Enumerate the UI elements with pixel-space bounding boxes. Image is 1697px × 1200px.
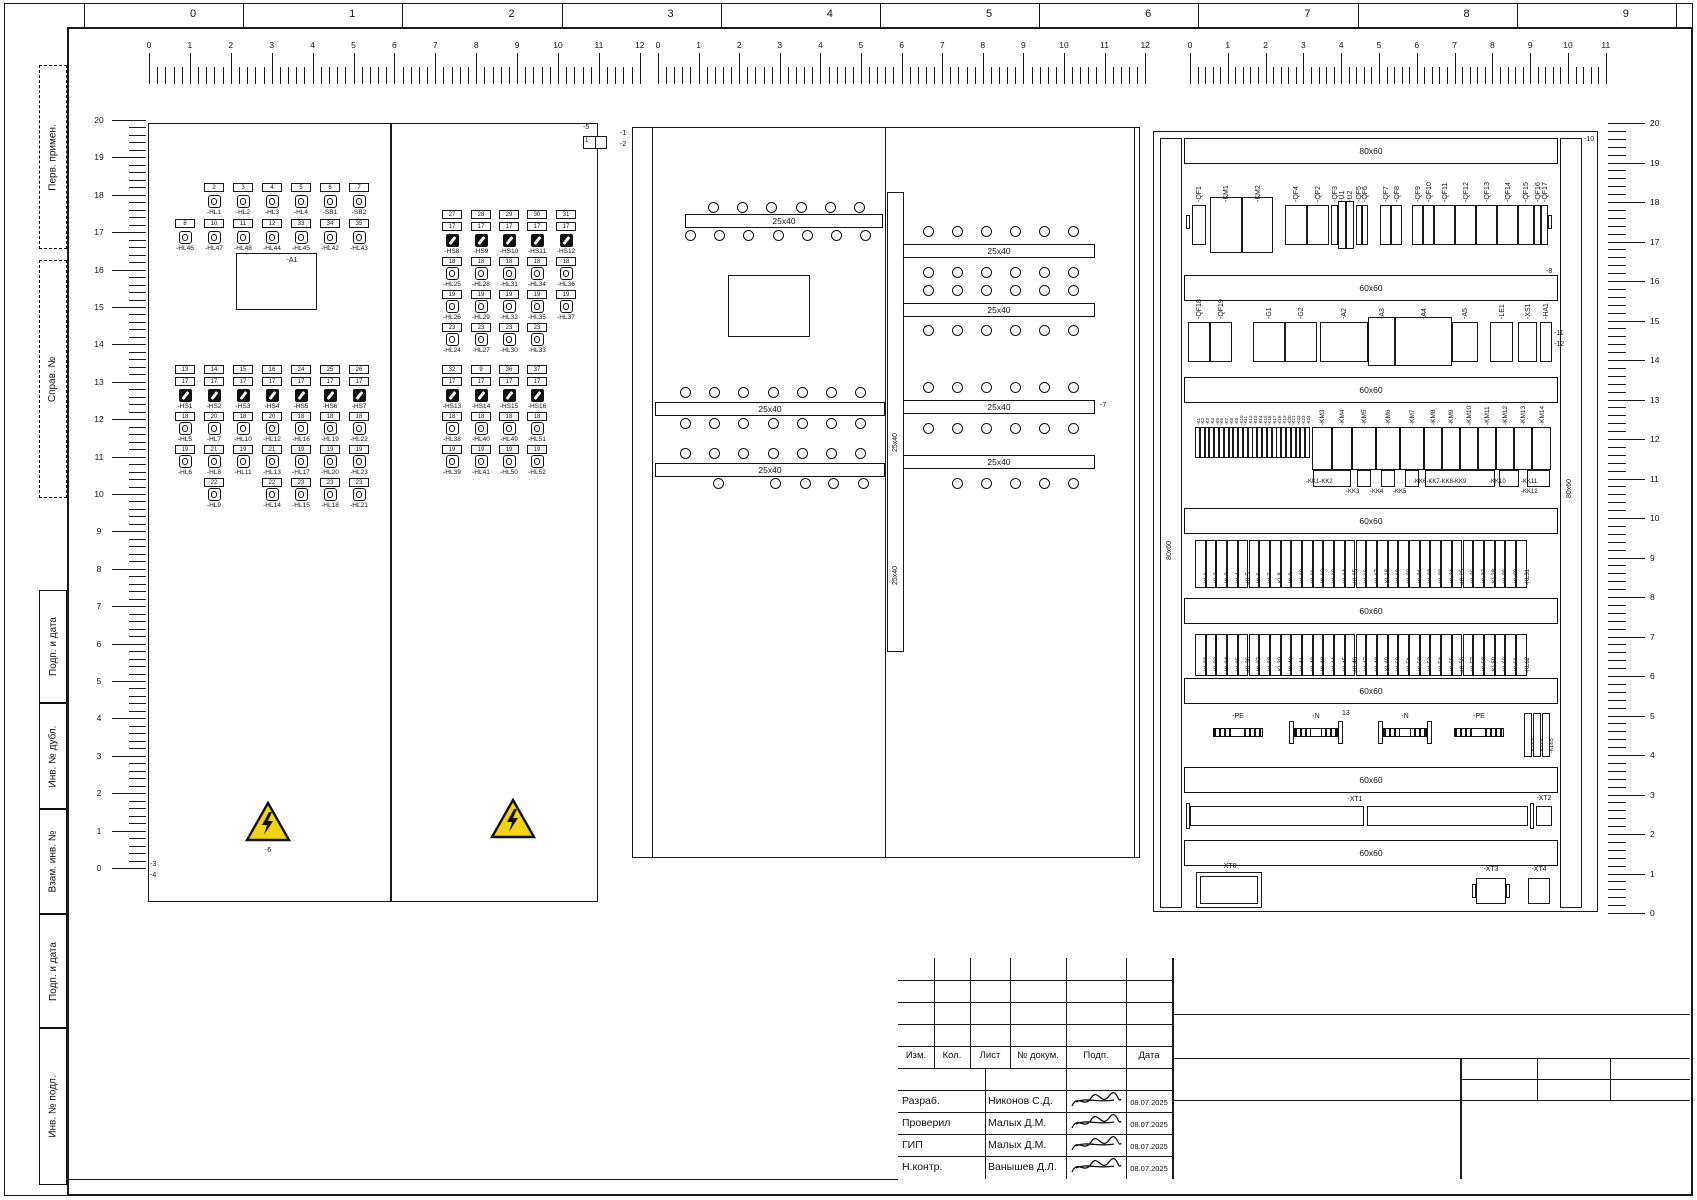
mounting-hole — [709, 448, 720, 459]
mounting-hole — [855, 448, 866, 459]
margin-label: Подп. и дата — [48, 942, 59, 1001]
ruler-tick — [296, 67, 297, 84]
ruler-number: 1 — [689, 40, 709, 50]
ruler-tick — [1213, 67, 1214, 84]
ruler-tick — [1608, 455, 1626, 456]
indicator-lamp — [237, 231, 250, 244]
top-scale-label: 4 — [780, 8, 880, 20]
ruler-tick — [1591, 67, 1592, 84]
ruler-tick — [378, 67, 379, 84]
component-ref: -QF10 — [1426, 182, 1433, 202]
tb-line — [898, 1156, 1172, 1157]
ruler-tick — [112, 120, 146, 121]
margin-label-box: Перв. примен. — [39, 65, 67, 249]
tag-label-box: 6 — [320, 183, 340, 192]
ruler-tick — [640, 53, 641, 84]
ruler-number: 10 — [548, 40, 568, 50]
ruler-tick — [214, 67, 215, 84]
ruler-tick — [991, 67, 992, 84]
cable-ref: -4 — [150, 872, 156, 879]
ruler-tick — [983, 53, 984, 84]
ruler-tick — [853, 67, 854, 84]
ruler-tick — [674, 67, 675, 84]
bus-bar-gap — [1474, 729, 1484, 736]
ruler-tick — [542, 67, 543, 84]
mounting-hole — [981, 285, 992, 296]
ruler-tick — [112, 868, 146, 869]
tag-label-box: 11 — [233, 219, 253, 228]
mounting-hole — [828, 478, 839, 489]
contactor-box — [1352, 427, 1376, 470]
ruler-number: 20 — [90, 115, 108, 125]
ruler-tick — [129, 741, 146, 742]
ruler-tick — [112, 270, 146, 271]
mounting-hole — [802, 230, 813, 241]
selector-switch — [503, 389, 516, 402]
device-name: -HL37 — [546, 314, 586, 321]
ruler-tick — [1220, 67, 1221, 84]
device-name: -HL36 — [546, 281, 586, 288]
component-ref: -K19 — [1282, 415, 1287, 425]
ruler-tick — [1530, 53, 1531, 84]
ruler-tick — [129, 733, 146, 734]
ruler-tick — [715, 67, 716, 84]
tag-label-box: 27 — [442, 210, 462, 219]
component-box — [1210, 197, 1242, 253]
tag-label-box: 23 — [442, 323, 462, 332]
mounting-hole — [714, 230, 725, 241]
ruler-tick — [129, 217, 146, 218]
indicator-lamp — [208, 422, 221, 435]
ruler-tick — [264, 67, 265, 84]
component-box — [1412, 205, 1423, 245]
ruler-tick — [1608, 802, 1626, 803]
ruler-tick — [112, 793, 146, 794]
ruler-tick — [129, 367, 146, 368]
warning-triangle-icon — [245, 801, 291, 842]
sheet-bottom-line — [67, 1179, 898, 1180]
ruler-number: 18 — [1650, 197, 1659, 207]
tag-label-box: 17 — [262, 377, 282, 386]
ruler-tick — [934, 67, 935, 84]
mounting-hole — [923, 423, 934, 434]
ruler-tick — [1455, 53, 1456, 84]
tag-label-box: 19 — [442, 290, 462, 299]
indicator-lamp — [446, 422, 459, 435]
mounting-hole — [981, 267, 992, 278]
ruler-tick — [942, 53, 943, 84]
mounting-hole — [1039, 382, 1050, 393]
ruler-tick — [129, 846, 146, 847]
device-name: -HL23 — [339, 469, 379, 476]
tag-label-box: 19 — [442, 445, 462, 454]
ruler-number: 1 — [1218, 40, 1238, 50]
ruler-tick — [1608, 218, 1626, 219]
component-box — [1338, 201, 1346, 249]
scale-tick — [1039, 3, 1040, 27]
cable-duct: 25x40 — [903, 455, 1095, 469]
indicator-lamp — [266, 231, 279, 244]
ruler-tick — [574, 67, 575, 84]
tag-label-box: 18 — [471, 257, 491, 266]
component-ref: -XS1 — [1525, 303, 1532, 319]
ruler-tick — [525, 67, 526, 84]
ruler-tick — [129, 389, 146, 390]
terminal-ref: -KL65 — [1549, 738, 1555, 753]
indicator-lamp — [475, 333, 488, 346]
ruler-tick — [1608, 265, 1626, 266]
panel-ref: -10 — [1584, 136, 1594, 143]
ruler-tick — [1608, 502, 1626, 503]
ruler-tick — [129, 314, 146, 315]
ruler-number: 20 — [1650, 118, 1659, 128]
terminal-strip-ref: -XT1 — [1335, 796, 1375, 803]
ruler-tick — [804, 67, 805, 84]
mounting-hole — [797, 418, 808, 429]
tag-label-box: 19 — [291, 445, 311, 454]
ruler-number: 14 — [1650, 355, 1659, 365]
indicator-lamp — [446, 333, 459, 346]
tag-label-box: 23 — [471, 323, 491, 332]
ruler-number: 19 — [1650, 158, 1659, 168]
ruler-number: 8 — [90, 564, 108, 574]
ruler-tick — [129, 322, 146, 323]
ruler-tick — [1243, 67, 1244, 84]
ruler-number: 9 — [1650, 553, 1655, 563]
ruler-number: 0 — [648, 40, 668, 50]
component-box — [1320, 322, 1368, 362]
component-ref: -KM9 — [1448, 409, 1455, 425]
indicator-lamp — [179, 231, 192, 244]
component-ref: -QF11 — [1442, 183, 1449, 202]
mounting-hole — [1010, 285, 1021, 296]
ruler-tick — [476, 53, 477, 84]
mounting-hole — [1010, 423, 1021, 434]
terminal-strip-ref: -XT0 — [1209, 863, 1249, 870]
component-ref: -K24 — [1306, 415, 1311, 425]
indicator-lamp — [266, 455, 279, 468]
ruler-tick — [1608, 534, 1626, 535]
ruler-tick — [1608, 463, 1626, 464]
top-scale-label: 2 — [461, 8, 561, 20]
ruler-tick — [403, 67, 404, 84]
tag-label-box: 12 — [262, 219, 282, 228]
thermal-relay-ref: -KK4 — [1370, 489, 1383, 495]
ruler-tick — [1553, 67, 1554, 84]
ruler-tick — [321, 67, 322, 84]
cable-duct: 60x60 — [1184, 678, 1558, 704]
component-ref: -QF2 — [1315, 186, 1322, 202]
row-ref: -8 — [1546, 268, 1552, 275]
mounting-hole — [1010, 325, 1021, 336]
mounting-hole — [768, 418, 779, 429]
indicator-lamp — [208, 195, 221, 208]
ruler-tick — [1145, 53, 1146, 84]
margin-label: Взам. инв. № — [48, 831, 59, 893]
tag-label-box: 20 — [204, 412, 224, 421]
ruler-tick — [1608, 471, 1626, 472]
ruler-tick — [129, 808, 146, 809]
ruler-tick — [129, 427, 146, 428]
indicator-lamp — [531, 455, 544, 468]
mounting-hole — [855, 418, 866, 429]
contactor-box — [1400, 427, 1424, 470]
ruler-tick — [1608, 542, 1626, 543]
top-scale-label: 0 — [143, 8, 243, 20]
ruler-number: 8 — [466, 40, 486, 50]
ruler-number: 16 — [90, 265, 108, 275]
ruler-tick — [1608, 249, 1626, 250]
ruler-tick — [129, 202, 146, 203]
component-ref: -QF12 — [1463, 182, 1470, 202]
indicator-lamp — [531, 300, 544, 313]
ruler-tick — [1447, 67, 1448, 84]
component-box — [1541, 205, 1548, 245]
ruler-tick — [1608, 186, 1626, 187]
tag-label-box: 19 — [175, 445, 195, 454]
component-ref: -QF15 — [1523, 182, 1530, 202]
indicator-lamp — [208, 231, 221, 244]
ruler-number: 9 — [507, 40, 527, 50]
indicator-lamp — [475, 300, 488, 313]
tb-line — [898, 1112, 1172, 1113]
ruler-tick — [747, 67, 748, 84]
terminal-strip — [1190, 806, 1364, 826]
mounting-hole — [738, 418, 749, 429]
tag-label-box: 17 — [527, 222, 547, 231]
ruler-tick — [885, 67, 886, 84]
ruler-tick — [1608, 242, 1645, 243]
tag-label-box: 18 — [527, 412, 547, 421]
tb-line — [1460, 1058, 1462, 1179]
ruler-number: 2 — [1650, 829, 1655, 839]
thermal-relay-ref: -KK6-KK7-KK8-KK9 — [1413, 479, 1466, 485]
ruler-number: 17 — [1650, 237, 1659, 247]
tag-label-box: 36 — [499, 365, 519, 374]
ruler-tick — [1007, 67, 1008, 84]
ruler-tick — [739, 53, 740, 84]
tb-line — [898, 1002, 1172, 1003]
ruler-tick — [129, 135, 146, 136]
duct-size-label: 80x60 — [1566, 479, 1573, 498]
component-ref: -KM12 — [1502, 406, 1509, 425]
terminal-block — [1528, 878, 1550, 904]
tag-label-box: 23 — [320, 478, 340, 487]
component-ref: -QF7 — [1383, 186, 1390, 202]
tag-label-box: 17 — [233, 377, 253, 386]
mounting-hole — [797, 387, 808, 398]
scale-tick — [721, 3, 722, 27]
ruler-tick — [1608, 866, 1626, 867]
tb-line — [1066, 1068, 1067, 1179]
component-box — [1285, 205, 1307, 245]
cable-duct: 25x40 — [903, 400, 1095, 414]
ruler-tick — [1608, 708, 1626, 709]
cable-duct: 60x60 — [1184, 767, 1558, 793]
mounting-hole — [981, 325, 992, 336]
ruler-tick — [926, 67, 927, 84]
ruler-tick — [345, 67, 346, 84]
ruler-number: 0 — [1180, 40, 1200, 50]
mounting-hole — [743, 230, 754, 241]
lock-ref: -5 — [583, 124, 589, 131]
tag-label-box: 28 — [471, 210, 491, 219]
mounting-hole — [1039, 478, 1050, 489]
ruler-tick — [129, 838, 146, 839]
ruler-tick — [1608, 795, 1645, 796]
ruler-tick — [1608, 257, 1626, 258]
ruler-number: 11 — [589, 40, 609, 50]
ruler-number: 8 — [1482, 40, 1502, 50]
mounting-hole — [854, 202, 865, 213]
margin-label: Инв. № подл. — [48, 1075, 59, 1137]
component-box — [1331, 205, 1338, 245]
ruler-number: 6 — [90, 639, 108, 649]
duct-vertical — [1160, 138, 1182, 908]
ruler-tick — [165, 67, 166, 84]
contactor-box — [1532, 427, 1551, 470]
tag-label-box: 17 — [320, 377, 340, 386]
ruler-number: 9 — [1013, 40, 1033, 50]
ruler-tick — [1608, 905, 1626, 906]
ruler-tick — [1538, 67, 1539, 84]
ruler-tick — [231, 53, 232, 84]
ruler-tick — [1205, 67, 1206, 84]
ruler-tick — [452, 67, 453, 84]
ruler-tick — [1608, 447, 1626, 448]
ruler-tick — [1462, 67, 1463, 84]
tb-line — [898, 980, 1172, 981]
ruler-tick — [1608, 226, 1626, 227]
ruler-tick — [658, 53, 659, 84]
ruler-tick — [112, 382, 146, 383]
ruler-tick — [129, 487, 146, 488]
component-box — [1285, 322, 1317, 362]
tag-label-box: 14 — [204, 365, 224, 374]
ruler-tick — [129, 472, 146, 473]
mounting-hole — [923, 226, 934, 237]
ruler-tick — [1356, 67, 1357, 84]
tag-label-box: 17 — [471, 222, 491, 231]
ruler-tick — [394, 53, 395, 84]
ruler-tick — [861, 53, 862, 84]
contactor-box — [1376, 427, 1400, 470]
component-ref: -KM10 — [1466, 406, 1473, 425]
hinge-ref: -1 — [620, 130, 626, 137]
ruler-tick — [731, 67, 732, 84]
terminal-ref: -KL31 — [1525, 569, 1531, 585]
ruler-tick — [1608, 123, 1645, 124]
ruler-number: 2 — [1256, 40, 1276, 50]
indicator-lamp — [266, 422, 279, 435]
tag-label-box: 17 — [175, 377, 195, 386]
contactor-box — [1312, 427, 1332, 470]
ruler-tick — [129, 277, 146, 278]
indicator-lamp — [208, 488, 221, 501]
ruler-tick — [1088, 67, 1089, 84]
ruler-tick — [1608, 439, 1645, 440]
ruler-tick — [1470, 67, 1471, 84]
tb-line — [898, 1090, 1172, 1091]
ruler-tick — [247, 67, 248, 84]
ruler-tick — [1515, 67, 1516, 84]
tag-label-box: 18 — [442, 412, 462, 421]
indicator-lamp — [295, 231, 308, 244]
ruler-number: 7 — [90, 601, 108, 611]
tb-line — [898, 1024, 1172, 1025]
ruler-tick — [1545, 67, 1546, 84]
component-box — [1253, 322, 1285, 362]
view2-cabinet — [632, 127, 1140, 858]
ruler-tick — [129, 150, 146, 151]
indicator-lamp — [446, 455, 459, 468]
indicator-lamp — [295, 488, 308, 501]
ruler-tick — [1608, 874, 1645, 875]
mounting-hole — [826, 387, 837, 398]
ruler-tick — [1608, 637, 1645, 638]
margin-label-box: Инв. № дубл. — [39, 703, 67, 809]
ruler-tick — [1608, 494, 1626, 495]
ruler-number: 3 — [262, 40, 282, 50]
tag-label-box: 31 — [556, 210, 576, 219]
ruler-tick — [129, 816, 146, 817]
mounting-hole — [1039, 285, 1050, 296]
mounting-hole — [713, 478, 724, 489]
ruler-tick — [112, 494, 146, 495]
ruler-tick — [1608, 589, 1626, 590]
tag-label-box: 9 — [471, 365, 491, 374]
ruler-tick — [370, 67, 371, 84]
tag-label-box: 19 — [320, 445, 340, 454]
mounting-hole — [981, 423, 992, 434]
tag-label-box: 18 — [499, 257, 519, 266]
ruler-tick — [129, 584, 146, 585]
indicator-lamp — [475, 422, 488, 435]
mounting-hole — [981, 478, 992, 489]
ruler-tick — [1606, 53, 1607, 84]
signature — [1068, 1157, 1124, 1177]
tb-header-label: Лист — [965, 1050, 1015, 1061]
ruler-tick — [129, 748, 146, 749]
mounting-hole — [1010, 382, 1021, 393]
ruler-tick — [796, 67, 797, 84]
ruler-tick — [112, 718, 146, 719]
tag-label-box: 23 — [291, 478, 311, 487]
tb-line — [1537, 1058, 1538, 1100]
tag-label-box: 18 — [291, 412, 311, 421]
ruler-tick — [1608, 834, 1645, 835]
ruler-tick — [1568, 53, 1569, 84]
selector-switch — [324, 389, 337, 402]
ruler-tick — [1608, 700, 1626, 701]
ruler-tick — [918, 67, 919, 84]
ruler-tick — [1349, 67, 1350, 84]
tag-label-box: 17 — [349, 377, 369, 386]
ruler-tick — [112, 606, 146, 607]
mounting-hole — [952, 382, 963, 393]
component-ref: -LE1 — [1499, 304, 1506, 319]
ruler-tick — [129, 599, 146, 600]
duct-size-label: 80x60 — [1166, 541, 1173, 560]
mounting-hole — [797, 448, 808, 459]
ruler-tick — [129, 524, 146, 525]
ruler-tick — [190, 53, 191, 84]
tag-label-box: 29 — [499, 210, 519, 219]
lock-box-divider — [595, 136, 596, 149]
mounting-hole — [826, 418, 837, 429]
mounting-hole — [1039, 226, 1050, 237]
hinge-ref: -2 — [620, 141, 626, 148]
